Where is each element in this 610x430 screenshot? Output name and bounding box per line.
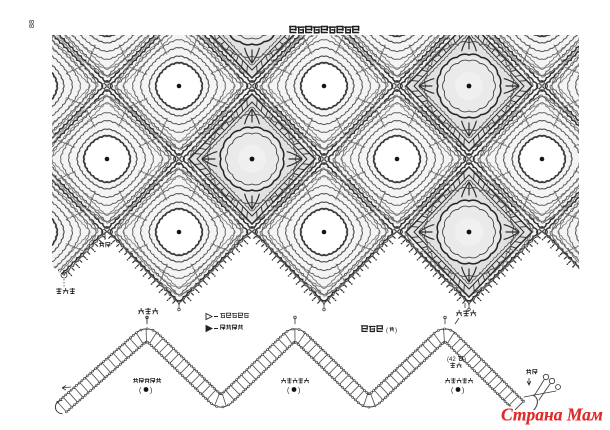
svg-text:): )	[150, 388, 152, 395]
svg-text:): )	[464, 357, 466, 363]
svg-text:88: 88	[27, 20, 36, 28]
svg-text:): )	[395, 328, 397, 334]
svg-text:): )	[298, 388, 300, 395]
svg-text:(42: (42	[447, 357, 456, 363]
svg-text:(: (	[386, 328, 388, 334]
svg-text:Страна Мам: Страна Мам	[501, 405, 603, 425]
svg-text:): )	[462, 388, 464, 395]
